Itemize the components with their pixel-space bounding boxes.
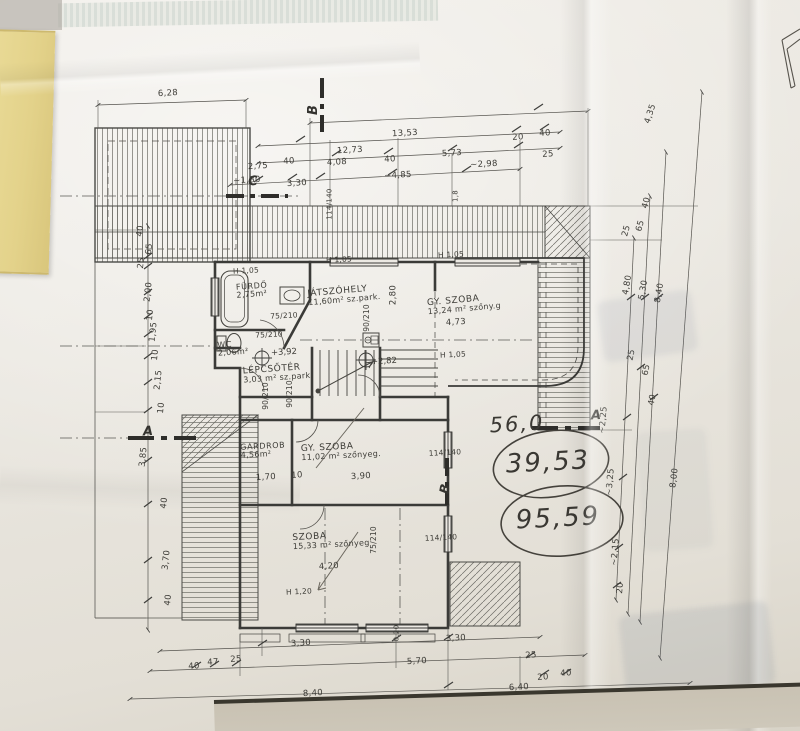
photo-of-floorplan: FÜRDŐ2,75m²WC2,06m²JÁTSZÓHELY11,60m² sz.… (0, 0, 800, 731)
roof-hatch-areas (95, 128, 590, 626)
handwritten-circles (489, 423, 625, 560)
paper-bleedthrough (636, 428, 714, 553)
staircase (316, 350, 438, 396)
paper-bleedthrough (596, 289, 699, 364)
corner-pencil-sketch (782, 29, 800, 88)
level-mark-symbols (252, 348, 376, 370)
pencil-strokes (316, 408, 364, 590)
